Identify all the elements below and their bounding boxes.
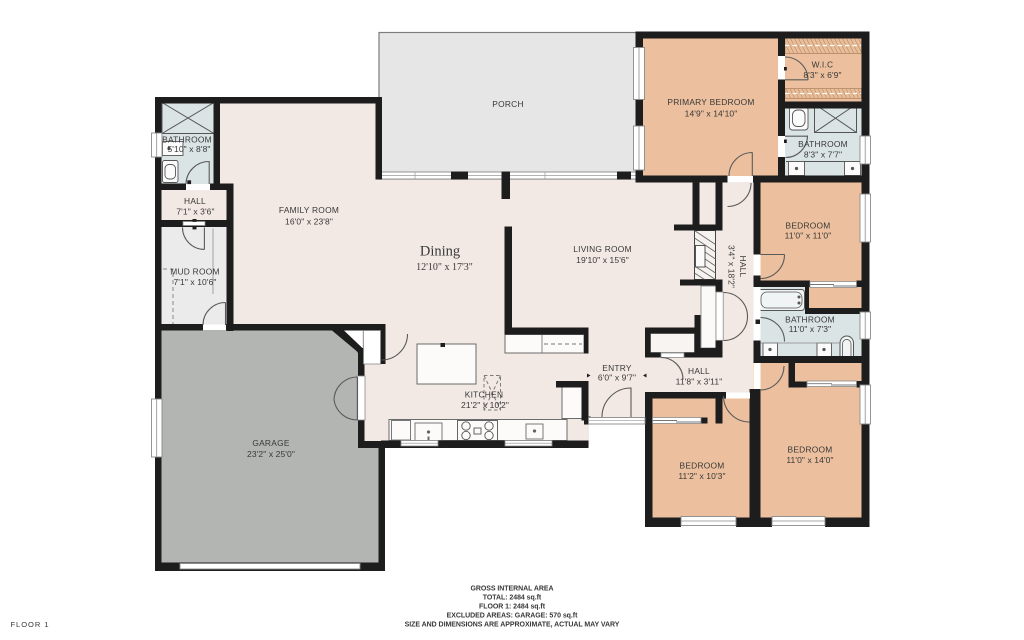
svg-text:21'2" x 10'2": 21'2" x 10'2" <box>461 400 509 410</box>
svg-text:PORCH: PORCH <box>492 99 524 109</box>
svg-text:FAMILY ROOM: FAMILY ROOM <box>279 205 339 215</box>
svg-text:TOTAL: 2484 sq.ft: TOTAL: 2484 sq.ft <box>483 595 542 602</box>
svg-text:ENTRY: ENTRY <box>602 363 632 373</box>
svg-text:11'2" x 10'3": 11'2" x 10'3" <box>678 471 725 481</box>
svg-text:BATHROOM: BATHROOM <box>162 135 212 145</box>
svg-text:HALL: HALL <box>738 256 748 278</box>
svg-text:Dining: Dining <box>420 244 460 260</box>
svg-text:PRIMARY BEDROOM: PRIMARY BEDROOM <box>667 97 754 107</box>
svg-text:HALL: HALL <box>688 366 710 376</box>
svg-text:8'3" x 7'7": 8'3" x 7'7" <box>804 150 842 160</box>
svg-text:16'0" x 23'8": 16'0" x 23'8" <box>285 217 333 227</box>
svg-text:11'0" x 14'0": 11'0" x 14'0" <box>786 455 833 465</box>
svg-text:SIZE AND DIMENSIONS ARE APPROX: SIZE AND DIMENSIONS ARE APPROXIMATE, ACT… <box>405 622 620 629</box>
svg-text:7'1" x 3'6": 7'1" x 3'6" <box>176 207 214 217</box>
svg-text:HALL: HALL <box>184 196 206 206</box>
svg-text:BEDROOM: BEDROOM <box>679 461 724 471</box>
svg-text:LIVING ROOM: LIVING ROOM <box>573 244 632 254</box>
svg-text:BEDROOM: BEDROOM <box>785 221 830 231</box>
svg-text:3'4" x 18'2": 3'4" x 18'2" <box>727 245 737 288</box>
svg-text:19'10" x 15'6": 19'10" x 15'6" <box>576 255 629 265</box>
svg-text:BATHROOM: BATHROOM <box>798 139 848 149</box>
svg-text:12'10" x 17'3": 12'10" x 17'3" <box>416 262 473 273</box>
svg-text:KITCHEN: KITCHEN <box>465 390 504 400</box>
svg-text:W.I.C: W.I.C <box>812 60 834 70</box>
svg-text:6'0" x 9'7": 6'0" x 9'7" <box>598 373 636 383</box>
svg-text:8'3" x 6'9": 8'3" x 6'9" <box>803 70 841 80</box>
svg-text:EXCLUDED AREAS: GARAGE: 570 sq: EXCLUDED AREAS: GARAGE: 570 sq.ft <box>447 613 578 620</box>
svg-text:GROSS INTERNAL AREA: GROSS INTERNAL AREA <box>470 586 553 593</box>
svg-text:14'9" x 14'10": 14'9" x 14'10" <box>685 109 738 119</box>
svg-text:11'0" x 11'0": 11'0" x 11'0" <box>785 231 832 241</box>
svg-text:FLOOR 1: FLOOR 1 <box>10 620 49 629</box>
svg-text:5'10" x 8'8": 5'10" x 8'8" <box>167 144 210 154</box>
svg-text:FLOOR 1: 2484 sq.ft: FLOOR 1: 2484 sq.ft <box>479 604 546 611</box>
svg-text:MUD ROOM: MUD ROOM <box>170 267 219 277</box>
svg-text:11'8" x 3'11": 11'8" x 3'11" <box>676 377 723 387</box>
svg-text:7'1" x 10'6": 7'1" x 10'6" <box>173 277 216 287</box>
svg-text:11'0" x 7'3": 11'0" x 7'3" <box>789 324 831 334</box>
svg-text:23'2" x 25'0": 23'2" x 25'0" <box>247 449 295 459</box>
svg-text:GARAGE: GARAGE <box>252 438 289 448</box>
svg-text:BEDROOM: BEDROOM <box>787 445 832 455</box>
svg-text:BATHROOM: BATHROOM <box>785 315 835 325</box>
